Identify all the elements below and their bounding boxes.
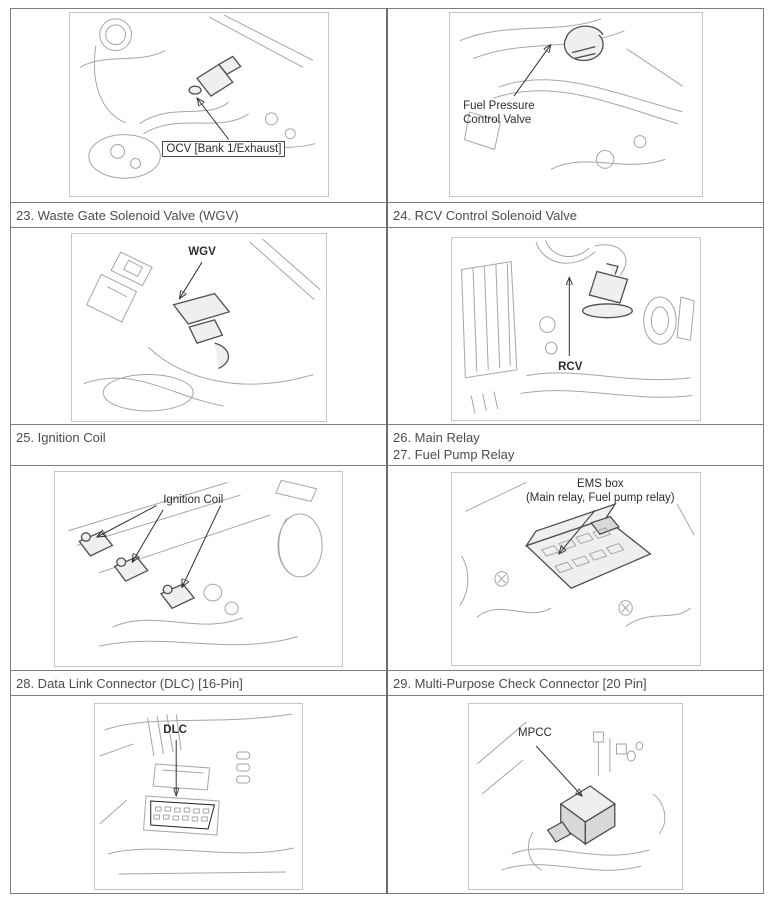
- caption-item-23: 23. Waste Gate Solenoid Valve (WGV): [11, 203, 388, 228]
- caption-row-23-24: 23. Waste Gate Solenoid Valve (WGV) 24. …: [11, 203, 764, 228]
- figure-cell-ignition-coil: Ignition Coil: [11, 466, 388, 671]
- figure-box-ems-box: EMS box (Main relay, Fuel pump relay): [451, 472, 701, 666]
- callout-label-rcv: RCV: [558, 360, 582, 374]
- leader-arrow-wgv: [72, 234, 326, 421]
- leader-arrow-dlc: [95, 704, 302, 889]
- callout-label-wgv: WGV: [188, 245, 215, 259]
- leader-arrow-ocv: [70, 13, 328, 196]
- caption-row-28-29: 28. Data Link Connector (DLC) [16-Pin] 2…: [11, 671, 764, 696]
- image-row-ocv-fpcv: OCV [Bank 1/Exhaust]: [11, 9, 764, 203]
- caption-item-26: 26. Main Relay: [393, 429, 759, 446]
- callout-label-dlc: DLC: [163, 723, 187, 737]
- caption-item-27: 27. Fuel Pump Relay: [393, 446, 759, 463]
- image-row-ignition-ems: Ignition Coil: [11, 466, 764, 671]
- caption-item-25: 25. Ignition Coil: [11, 425, 388, 466]
- figure-cell-ocv: OCV [Bank 1/Exhaust]: [11, 9, 388, 203]
- manual-page: OCV [Bank 1/Exhaust]: [0, 0, 774, 902]
- callout-label-fuel-pressure-control-valve: Fuel Pressure Control Valve: [463, 99, 545, 128]
- image-row-wgv-rcv: WGV: [11, 228, 764, 425]
- callout-label-mpcc: MPCC: [518, 726, 552, 740]
- caption-row-25-26-27: 25. Ignition Coil 26. Main Relay 27. Fue…: [11, 425, 764, 466]
- callout-label-ems-box-line1: EMS box: [518, 477, 682, 491]
- callout-label-ems-box-line2: (Main relay, Fuel pump relay): [518, 491, 682, 505]
- figure-cell-ems-box: EMS box (Main relay, Fuel pump relay): [387, 466, 764, 671]
- figure-box-ocv: OCV [Bank 1/Exhaust]: [69, 12, 329, 197]
- figure-box-ignition-coil: Ignition Coil: [54, 471, 343, 667]
- figure-cell-rcv: RCV: [387, 228, 764, 425]
- figure-cell-wgv: WGV: [11, 228, 388, 425]
- figure-box-dlc: DLC: [94, 703, 303, 890]
- callout-label-ems-box: EMS box (Main relay, Fuel pump relay): [518, 477, 682, 506]
- callout-label-ignition-coil: Ignition Coil: [163, 493, 223, 507]
- caption-items-26-27: 26. Main Relay 27. Fuel Pump Relay: [387, 425, 764, 466]
- caption-item-29: 29. Multi-Purpose Check Connector [20 Pi…: [387, 671, 764, 696]
- caption-item-28: 28. Data Link Connector (DLC) [16-Pin]: [11, 671, 388, 696]
- leader-arrow-mpcc: [469, 704, 682, 889]
- callout-label-ocv: OCV [Bank 1/Exhaust]: [162, 141, 285, 157]
- figure-box-rcv: RCV: [451, 237, 701, 421]
- figure-cell-fuel-pressure-control-valve: Fuel Pressure Control Valve: [387, 9, 764, 203]
- component-index-table: OCV [Bank 1/Exhaust]: [10, 8, 764, 894]
- figure-cell-mpcc: MPCC: [387, 696, 764, 894]
- figure-box-fuel-pressure-control-valve: Fuel Pressure Control Valve: [449, 12, 703, 197]
- figure-box-wgv: WGV: [71, 233, 327, 422]
- image-row-dlc-mpcc: DLC: [11, 696, 764, 894]
- caption-item-24: 24. RCV Control Solenoid Valve: [387, 203, 764, 228]
- leader-arrow-rcv: [452, 238, 700, 420]
- figure-box-mpcc: MPCC: [468, 703, 683, 890]
- figure-cell-dlc: DLC: [11, 696, 388, 894]
